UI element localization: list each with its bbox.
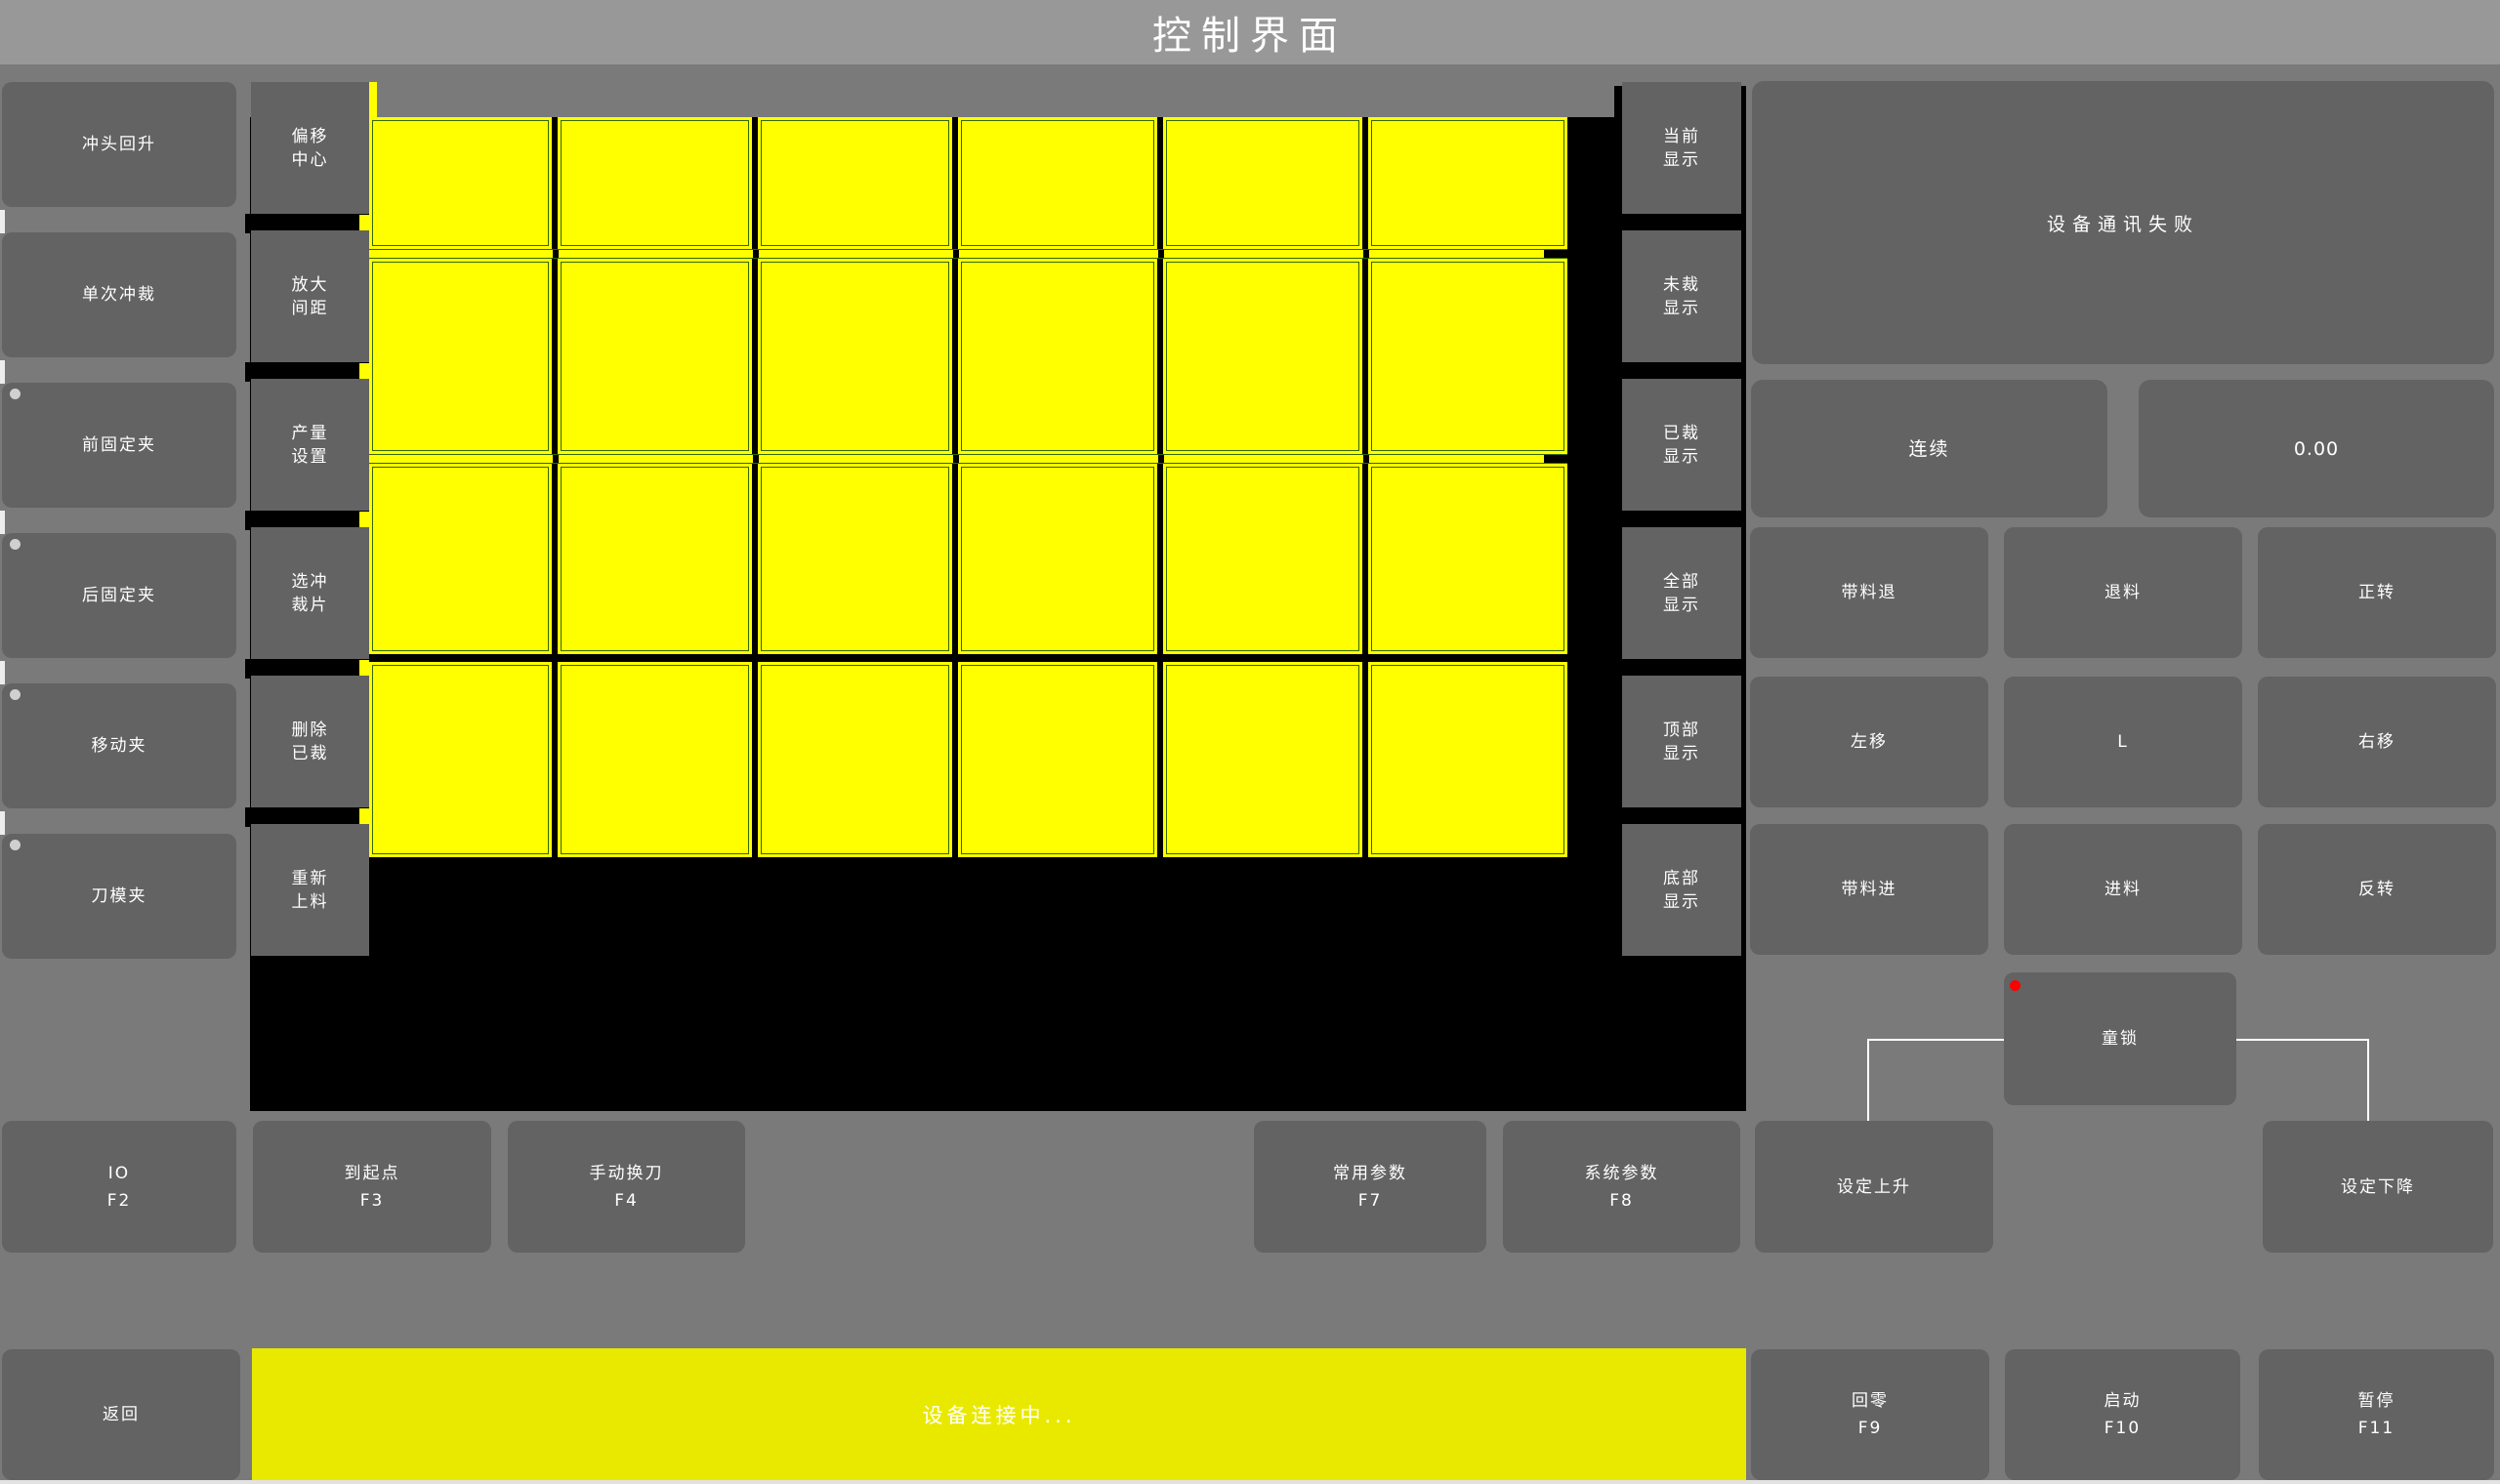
front-fixed-clamp-button[interactable]: 前固定夹 bbox=[2, 383, 236, 508]
status-dot bbox=[10, 539, 21, 550]
reload-material-button[interactable]: 重新 上料 bbox=[251, 824, 369, 956]
cut-piece[interactable] bbox=[1163, 662, 1362, 857]
delete-cut-button[interactable]: 删除 已裁 bbox=[251, 676, 369, 807]
left-edge-tick bbox=[0, 360, 5, 384]
button-label: 暂停 bbox=[2358, 1387, 2396, 1415]
cut-piece[interactable] bbox=[958, 117, 1157, 249]
l-button[interactable]: L bbox=[2004, 677, 2242, 807]
cut-piece[interactable] bbox=[958, 662, 1157, 857]
page-title: 控制界面 bbox=[1152, 4, 1348, 61]
button-label: 设定下降 bbox=[2341, 1174, 2415, 1201]
button-label: 回零 bbox=[1852, 1387, 1889, 1415]
material-gap-tab bbox=[359, 660, 369, 677]
button-label-line2: 间距 bbox=[292, 297, 329, 320]
device-status-panel: 设备通讯失败 bbox=[1752, 81, 2494, 364]
cut-piece[interactable] bbox=[558, 117, 752, 249]
band-tick bbox=[1363, 455, 1369, 463]
cut-piece[interactable] bbox=[1368, 662, 1567, 857]
back-button[interactable]: 返回 bbox=[2, 1349, 240, 1480]
status-dot bbox=[10, 389, 21, 399]
strip-feed-button[interactable]: 带料进 bbox=[1750, 824, 1988, 955]
button-fkey: F8 bbox=[1609, 1187, 1634, 1215]
button-label: 刀模夹 bbox=[92, 885, 147, 908]
button-fkey: F9 bbox=[1858, 1415, 1883, 1442]
cut-piece[interactable] bbox=[958, 464, 1157, 654]
cut-piece[interactable] bbox=[558, 662, 752, 857]
button-label: 左移 bbox=[1851, 730, 1888, 754]
button-label-line2: 显示 bbox=[1663, 594, 1700, 617]
button-fkey: F4 bbox=[614, 1187, 639, 1215]
move-left-button[interactable]: 左移 bbox=[1750, 677, 1988, 807]
band-tick bbox=[1158, 250, 1164, 258]
material-gap-tab bbox=[359, 363, 369, 380]
button-label-line1: 底部 bbox=[1663, 867, 1700, 890]
band-tick bbox=[553, 250, 559, 258]
button-label: 后固定夹 bbox=[82, 584, 156, 607]
button-label-line1: 未裁 bbox=[1663, 273, 1700, 297]
button-label-line2: 显示 bbox=[1663, 742, 1700, 765]
pause-f11-button[interactable]: 暂停 F11 bbox=[2259, 1349, 2494, 1480]
band-tick bbox=[953, 250, 959, 258]
button-label: 常用参数 bbox=[1333, 1160, 1407, 1187]
button-label-line1: 删除 bbox=[292, 719, 329, 742]
left-edge-tick bbox=[0, 811, 5, 835]
material-gap-tab bbox=[359, 512, 369, 528]
to-origin-f3-button[interactable]: 到起点 F3 bbox=[253, 1121, 491, 1253]
button-label: 带料进 bbox=[1842, 878, 1897, 901]
connector-line-right bbox=[2367, 1039, 2369, 1121]
button-fkey: F2 bbox=[107, 1187, 132, 1215]
button-label: 到起点 bbox=[345, 1160, 400, 1187]
button-label: 冲头回升 bbox=[82, 133, 156, 156]
button-label: 退料 bbox=[2104, 581, 2142, 604]
button-label: 连续 bbox=[1908, 437, 1949, 461]
punch-return-button[interactable]: 冲头回升 bbox=[2, 82, 236, 207]
uncut-display-button[interactable]: 未裁 显示 bbox=[1622, 230, 1741, 362]
left-edge-tick bbox=[0, 661, 5, 684]
button-fkey: F11 bbox=[2358, 1415, 2395, 1442]
red-indicator-dot bbox=[2010, 980, 2021, 991]
cut-piece[interactable] bbox=[1368, 464, 1567, 654]
piece-band bbox=[369, 454, 1567, 464]
band-tick bbox=[1544, 455, 1567, 463]
cut-piece[interactable] bbox=[369, 464, 552, 654]
band-tick bbox=[1363, 250, 1369, 258]
button-label: 单次冲裁 bbox=[82, 283, 156, 307]
piece-band bbox=[369, 249, 1567, 259]
button-label-line1: 当前 bbox=[1663, 125, 1700, 148]
cut-piece[interactable] bbox=[558, 259, 752, 454]
continuous-button[interactable]: 连续 bbox=[1751, 380, 2107, 517]
button-label: L bbox=[2117, 730, 2128, 754]
button-label: 手动换刀 bbox=[590, 1160, 664, 1187]
button-label-line1: 放大 bbox=[292, 273, 329, 297]
button-label-line1: 偏移 bbox=[292, 125, 329, 148]
material-edge-tab bbox=[368, 82, 377, 117]
button-label-line2: 设置 bbox=[292, 445, 329, 469]
band-tick bbox=[753, 250, 759, 258]
title-bar: 控制界面 bbox=[0, 0, 2500, 64]
cut-piece[interactable] bbox=[758, 662, 952, 857]
button-label-line1: 选冲 bbox=[292, 570, 329, 594]
set-descend-button[interactable]: 设定下降 bbox=[2263, 1121, 2493, 1253]
set-rise-button[interactable]: 设定上升 bbox=[1755, 1121, 1993, 1253]
unload-button[interactable]: 退料 bbox=[2004, 527, 2242, 658]
button-label: 正转 bbox=[2358, 581, 2396, 604]
cut-piece[interactable] bbox=[1163, 464, 1362, 654]
connection-status-bar: 设备连接中... bbox=[252, 1348, 1746, 1480]
offset-center-button[interactable]: 偏移 中心 bbox=[251, 82, 369, 214]
canvas-edge-tick bbox=[245, 214, 250, 233]
material-gap-tab bbox=[359, 808, 369, 825]
system-params-f8-button[interactable]: 系统参数 F8 bbox=[1503, 1121, 1740, 1253]
button-fkey: F3 bbox=[360, 1187, 385, 1215]
bottom-edge-line bbox=[0, 1480, 2500, 1484]
current-display-button[interactable]: 当前 显示 bbox=[1622, 82, 1741, 214]
band-tick bbox=[1158, 455, 1164, 463]
manual-tool-change-f4-button[interactable]: 手动换刀 F4 bbox=[508, 1121, 745, 1253]
button-label: 启动 bbox=[2104, 1387, 2142, 1415]
button-label: 设定上升 bbox=[1837, 1174, 1911, 1201]
button-label-line2: 显示 bbox=[1663, 297, 1700, 320]
left-edge-tick bbox=[0, 511, 5, 534]
io-f2-button[interactable]: IO F2 bbox=[2, 1121, 236, 1253]
value-text: 0.00 bbox=[2294, 437, 2339, 461]
bottom-display-button[interactable]: 底部 显示 bbox=[1622, 824, 1741, 956]
control-screen: 控制界面 冲头回升 单次冲裁 前固定夹 后固定夹 移动夹 刀模夹 bbox=[0, 0, 2500, 1484]
band-tick bbox=[553, 455, 559, 463]
start-f10-button[interactable]: 启动 F10 bbox=[2005, 1349, 2240, 1480]
cut-piece[interactable] bbox=[558, 464, 752, 654]
canvas-edge-tick bbox=[245, 362, 250, 382]
button-label-line1: 已裁 bbox=[1663, 422, 1700, 445]
button-label: 反转 bbox=[2358, 878, 2396, 901]
piece-row bbox=[369, 464, 1567, 654]
cut-piece[interactable] bbox=[369, 259, 552, 454]
button-label-line2: 裁片 bbox=[292, 594, 329, 617]
reverse-rotate-button[interactable]: 反转 bbox=[2258, 824, 2496, 955]
value-display[interactable]: 0.00 bbox=[2139, 380, 2494, 517]
button-label: 带料退 bbox=[1842, 581, 1897, 604]
button-label: 童锁 bbox=[2102, 1027, 2139, 1051]
cut-piece[interactable] bbox=[1368, 259, 1567, 454]
band-tick bbox=[953, 455, 959, 463]
piece-row bbox=[369, 259, 1567, 454]
piece-row bbox=[369, 662, 1567, 857]
button-label: 返回 bbox=[103, 1403, 140, 1426]
canvas-edge-tick bbox=[245, 511, 250, 530]
button-label-line2: 中心 bbox=[292, 148, 329, 172]
home-f9-button[interactable]: 回零 F9 bbox=[1751, 1349, 1989, 1480]
top-display-button[interactable]: 顶部 显示 bbox=[1622, 676, 1741, 807]
status-dot bbox=[10, 840, 21, 850]
button-label-line2: 显示 bbox=[1663, 445, 1700, 469]
die-clamp-button[interactable]: 刀模夹 bbox=[2, 834, 236, 959]
common-params-f7-button[interactable]: 常用参数 F7 bbox=[1254, 1121, 1486, 1253]
all-display-button[interactable]: 全部 显示 bbox=[1622, 527, 1741, 659]
material-gap-tab bbox=[359, 215, 369, 231]
cut-piece[interactable] bbox=[1163, 117, 1362, 249]
connection-status-text: 设备连接中... bbox=[922, 1400, 1075, 1429]
button-label: IO bbox=[108, 1160, 130, 1187]
canvas-edge-tick bbox=[245, 807, 250, 827]
cut-piece[interactable] bbox=[369, 662, 552, 857]
cut-display-button[interactable]: 已裁 显示 bbox=[1622, 379, 1741, 511]
forward-rotate-button[interactable]: 正转 bbox=[2258, 527, 2496, 658]
cut-piece[interactable] bbox=[758, 259, 952, 454]
strip-back-button[interactable]: 带料退 bbox=[1750, 527, 1988, 658]
feed-button[interactable]: 进料 bbox=[2004, 824, 2242, 955]
button-label: 进料 bbox=[2104, 878, 2142, 901]
button-label-line1: 全部 bbox=[1663, 570, 1700, 594]
select-piece-button[interactable]: 选冲 裁片 bbox=[251, 527, 369, 659]
child-lock-button[interactable]: 童锁 bbox=[2004, 972, 2236, 1105]
button-label-line2: 已裁 bbox=[292, 742, 329, 765]
move-right-button[interactable]: 右移 bbox=[2258, 677, 2496, 807]
enlarge-spacing-button[interactable]: 放大 间距 bbox=[251, 230, 369, 362]
piece-grid bbox=[369, 117, 1567, 857]
output-settings-button[interactable]: 产量 设置 bbox=[251, 379, 369, 511]
rear-fixed-clamp-button[interactable]: 后固定夹 bbox=[2, 533, 236, 658]
cut-piece[interactable] bbox=[758, 464, 952, 654]
piece-band-gap bbox=[369, 654, 1567, 662]
cut-piece[interactable] bbox=[1368, 117, 1567, 249]
button-label-line1: 重新 bbox=[292, 867, 329, 890]
button-fkey: F10 bbox=[2104, 1415, 2141, 1442]
cut-piece[interactable] bbox=[758, 117, 952, 249]
left-edge-tick bbox=[0, 210, 5, 233]
piece-row bbox=[369, 117, 1567, 249]
band-tick bbox=[753, 455, 759, 463]
device-status-message: 设备通讯失败 bbox=[2047, 210, 2199, 236]
button-label: 系统参数 bbox=[1585, 1160, 1659, 1187]
button-label-line1: 产量 bbox=[292, 422, 329, 445]
button-label: 前固定夹 bbox=[82, 433, 156, 457]
button-label-line2: 显示 bbox=[1663, 890, 1700, 914]
button-label-line1: 顶部 bbox=[1663, 719, 1700, 742]
cut-piece[interactable] bbox=[958, 259, 1157, 454]
cut-piece[interactable] bbox=[369, 117, 552, 249]
canvas-edge-tick bbox=[245, 659, 250, 679]
cut-piece[interactable] bbox=[1163, 259, 1362, 454]
button-label: 移动夹 bbox=[92, 734, 147, 758]
status-dot bbox=[10, 689, 21, 700]
button-fkey: F7 bbox=[1358, 1187, 1383, 1215]
moving-clamp-button[interactable]: 移动夹 bbox=[2, 683, 236, 808]
band-tick bbox=[1544, 250, 1567, 258]
button-label: 右移 bbox=[2358, 730, 2396, 754]
button-label-line2: 显示 bbox=[1663, 148, 1700, 172]
button-label-line2: 上料 bbox=[292, 890, 329, 914]
connector-line-left bbox=[1867, 1039, 1869, 1121]
single-punch-button[interactable]: 单次冲裁 bbox=[2, 232, 236, 357]
